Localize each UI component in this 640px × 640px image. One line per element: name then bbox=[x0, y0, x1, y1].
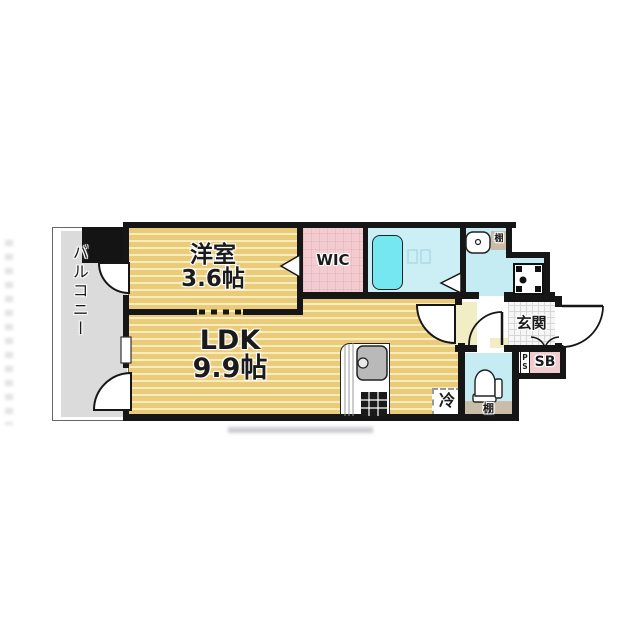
edge-artifact bbox=[5, 240, 13, 425]
balcony-label: バルコニー bbox=[70, 244, 87, 339]
bedroom-label: 洋室 3.6帖 bbox=[129, 243, 297, 291]
entrance-label: 玄関 bbox=[508, 316, 555, 332]
shoe-box-label: SB bbox=[530, 355, 560, 370]
ldk-name: LDK bbox=[120, 327, 340, 355]
bathtub-icon bbox=[372, 235, 403, 290]
wall-pillar bbox=[82, 227, 129, 263]
pipe-space-label: PS bbox=[521, 353, 529, 371]
wic-label: WIC bbox=[303, 253, 363, 269]
laundry-nook bbox=[508, 258, 544, 296]
entrance-door-arc bbox=[562, 306, 603, 347]
toilet-shelf-label: 棚 bbox=[465, 403, 512, 415]
hallway bbox=[455, 302, 477, 348]
ldk-size: 9.9帖 bbox=[120, 355, 340, 383]
washroom-shelf-label: 棚 bbox=[491, 235, 507, 244]
ldk-label: LDK 9.9帖 bbox=[120, 327, 340, 384]
floor-plan-canvas: バルコニー 洋室 3.6帖 LDK 9.9帖 WIC 玄関 SB PS 冷 棚 … bbox=[0, 0, 640, 640]
watermark-artifact bbox=[228, 427, 373, 433]
refrigerator-label: 冷 bbox=[432, 393, 462, 410]
bedroom-size: 3.6帖 bbox=[129, 267, 297, 291]
bedroom-name: 洋室 bbox=[129, 243, 297, 267]
entrance-step bbox=[490, 338, 508, 348]
kitchen-counter bbox=[340, 343, 390, 418]
